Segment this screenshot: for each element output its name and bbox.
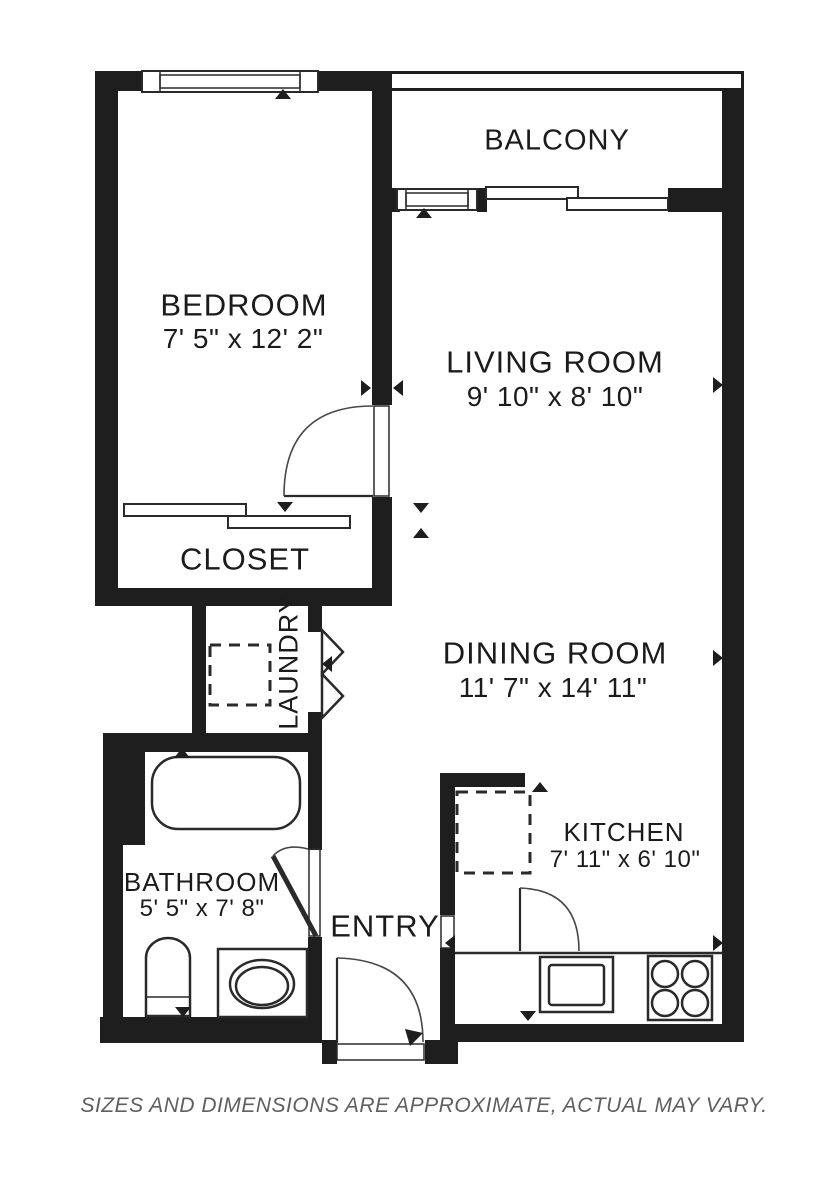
bathroom-dimensions: 5' 5" x 7' 8" [140, 897, 265, 921]
balcony-rail-inner [392, 88, 744, 91]
closet-label: CLOSET [180, 544, 310, 575]
toilet-icon [146, 938, 190, 1016]
entry-door-icon [337, 958, 424, 1060]
bedroom-dimensions: 7' 5" x 12' 2" [163, 325, 324, 353]
bedroom-window-icon [142, 71, 318, 92]
balcony-label: BALCONY [484, 127, 630, 156]
entry-label: ENTRY [330, 911, 440, 942]
kitchen-dimensions: 7' 11" x 6' 10" [550, 848, 701, 872]
balcony-window-icon [397, 189, 477, 210]
living-room-dimensions: 9' 10" x 8' 10" [467, 383, 644, 411]
kitchen-sink-icon [540, 957, 613, 1012]
kitchen-label: KITCHEN [563, 819, 684, 845]
bathroom-label: BATHROOM [124, 869, 280, 895]
refrigerator-icon [457, 792, 530, 873]
bathtub-icon [152, 757, 300, 829]
living-room-label: LIVING ROOM [446, 347, 664, 378]
bedroom-door-icon [284, 406, 389, 496]
dining-room-label: DINING ROOM [443, 638, 668, 669]
balcony-rail-top [392, 71, 744, 74]
floor-plan: BALCONY BEDROOM 7' 5" x 12' 2" LIVING RO… [0, 0, 839, 1200]
closet-sliding-doors-icon [124, 504, 350, 528]
washer-dryer-icon [210, 645, 270, 705]
kitchen-door-icon [441, 888, 579, 951]
bathroom-sink-icon [218, 949, 307, 1017]
floor-plan-drawing [0, 0, 839, 1200]
laundry-bifold-doors-icon [322, 630, 343, 718]
laundry-label: LAUNDRY [276, 594, 303, 730]
bedroom-label: BEDROOM [160, 290, 327, 321]
sliding-door-icon [486, 187, 668, 210]
stove-icon [648, 956, 712, 1020]
dining-room-dimensions: 11' 7" x 14' 11" [459, 674, 648, 702]
disclaimer-text: SIZES AND DIMENSIONS ARE APPROXIMATE, AC… [80, 1094, 767, 1118]
